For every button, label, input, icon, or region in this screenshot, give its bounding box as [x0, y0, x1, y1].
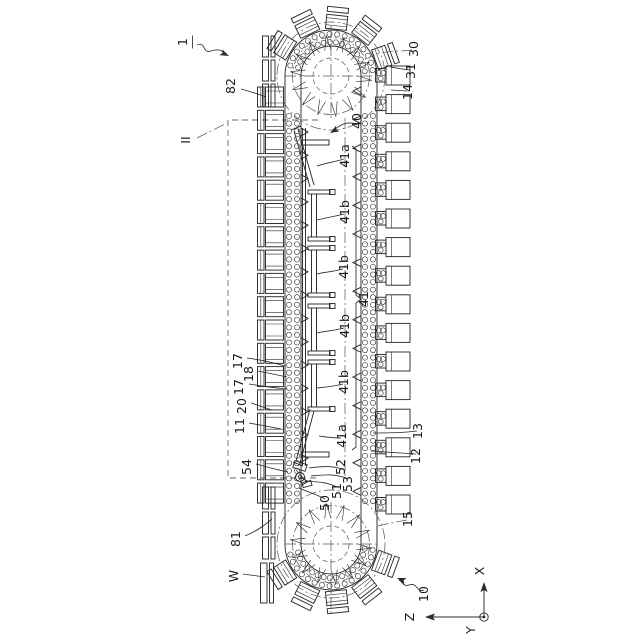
label-41: 41	[356, 291, 371, 307]
drawing	[228, 6, 410, 614]
label-50: 50	[317, 495, 332, 511]
label-W: W	[226, 570, 241, 582]
label-41a-bottom: 41a	[334, 424, 349, 448]
coordinate-axes	[425, 582, 488, 621]
label-12: 12	[408, 448, 423, 464]
label-14: 14	[400, 84, 415, 100]
label-31: 31	[403, 63, 418, 79]
label-section-II: II	[178, 136, 193, 143]
track-shoes	[258, 6, 411, 613]
leader-section-II	[197, 123, 227, 138]
leader-1	[197, 44, 226, 54]
axis-x-label: X	[472, 566, 487, 575]
guide-rails	[261, 36, 276, 603]
label-15: 15	[400, 511, 415, 527]
label-54: 54	[239, 459, 254, 475]
leader-11	[249, 423, 281, 429]
label-81: 81	[228, 531, 243, 547]
label-1: 1	[175, 38, 190, 46]
label-11: 11	[232, 418, 247, 434]
leader-W	[243, 574, 265, 577]
label-40: 40	[349, 113, 364, 129]
leader-10-arrowhead	[396, 575, 407, 584]
patent-figure-page: 1 82 II 30 31 14 40 41a 41b 41b 41 41b 4…	[0, 0, 640, 640]
axis-y-label: Y	[463, 626, 478, 635]
label-41a-top: 41a	[337, 144, 352, 168]
label-30: 30	[406, 41, 421, 57]
axis-z-label: Z	[402, 613, 417, 622]
support-frame	[291, 126, 335, 466]
label-41b-3: 41b	[337, 314, 352, 338]
leader-20	[251, 403, 272, 410]
label-41b-4: 41b	[336, 370, 351, 394]
leader-18	[258, 371, 287, 377]
label-41b-2: 41b	[336, 255, 351, 279]
patent-figure: 1 82 II 30 31 14 40 41a 41b 41b 41 41b 4…	[0, 0, 640, 640]
label-52: 52	[333, 459, 348, 475]
label-82: 82	[223, 78, 238, 94]
axis-y-dot-icon	[483, 616, 486, 619]
leader-81	[245, 519, 272, 536]
label-17-bottom: 17	[231, 379, 246, 395]
label-13: 13	[410, 423, 425, 439]
label-20: 20	[234, 398, 249, 414]
label-10: 10	[416, 586, 431, 602]
label-41b-1: 41b	[337, 200, 352, 224]
leader-lines	[193, 36, 425, 591]
